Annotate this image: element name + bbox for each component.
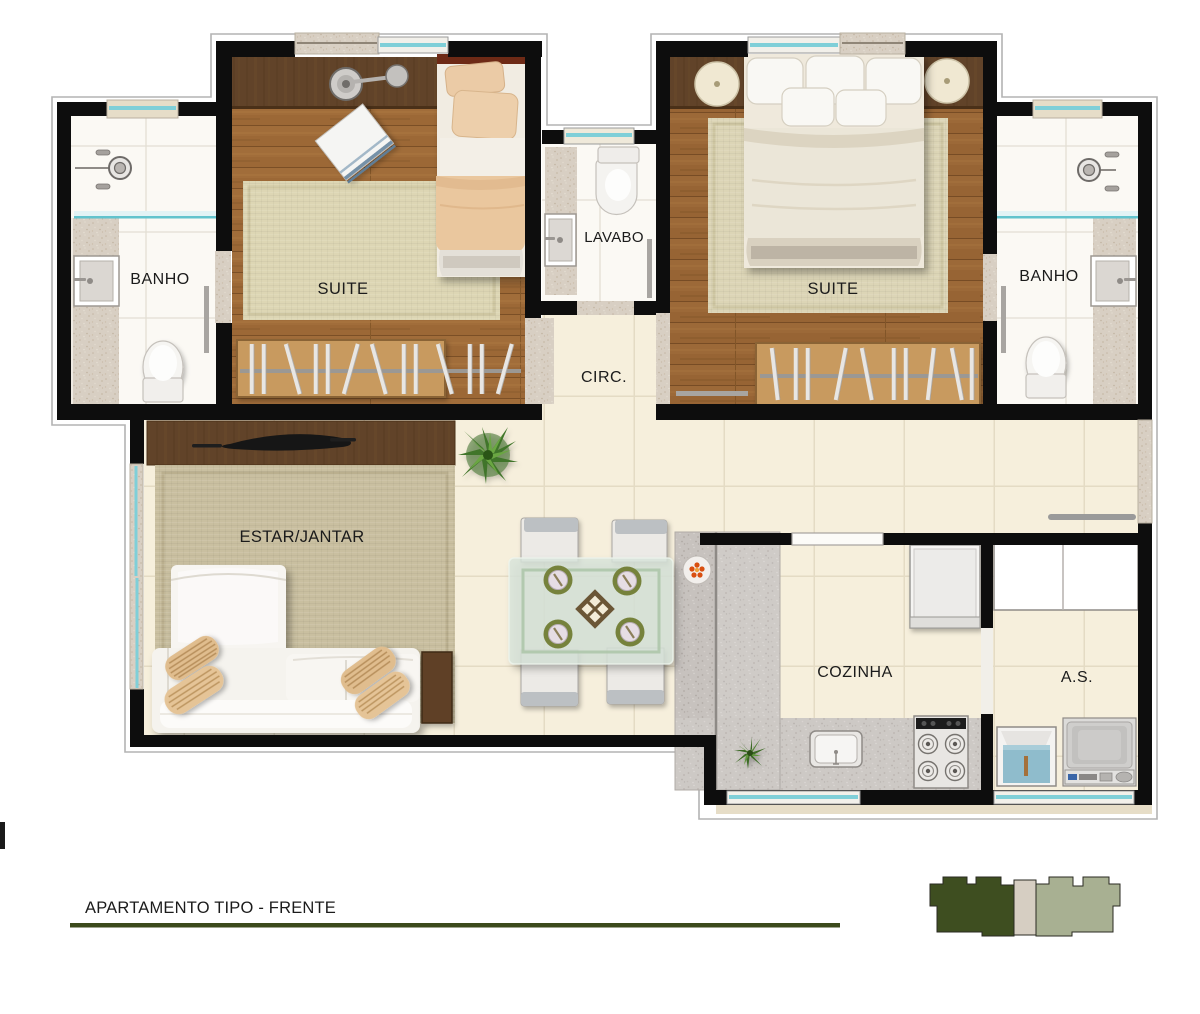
svg-text:SUITE: SUITE bbox=[807, 280, 858, 298]
svg-text:ESTAR/JANTAR: ESTAR/JANTAR bbox=[240, 528, 365, 546]
svg-text:COZINHA: COZINHA bbox=[817, 664, 893, 681]
svg-text:CIRC.: CIRC. bbox=[581, 369, 627, 386]
svg-text:BANHO: BANHO bbox=[130, 271, 189, 288]
svg-text:LAVABO: LAVABO bbox=[584, 229, 644, 246]
svg-text:BANHO: BANHO bbox=[1019, 268, 1078, 285]
svg-text:A.S.: A.S. bbox=[1061, 669, 1093, 686]
svg-text:APARTAMENTO TIPO - FRENTE: APARTAMENTO TIPO - FRENTE bbox=[85, 899, 336, 917]
svg-text:SUITE: SUITE bbox=[317, 280, 368, 298]
